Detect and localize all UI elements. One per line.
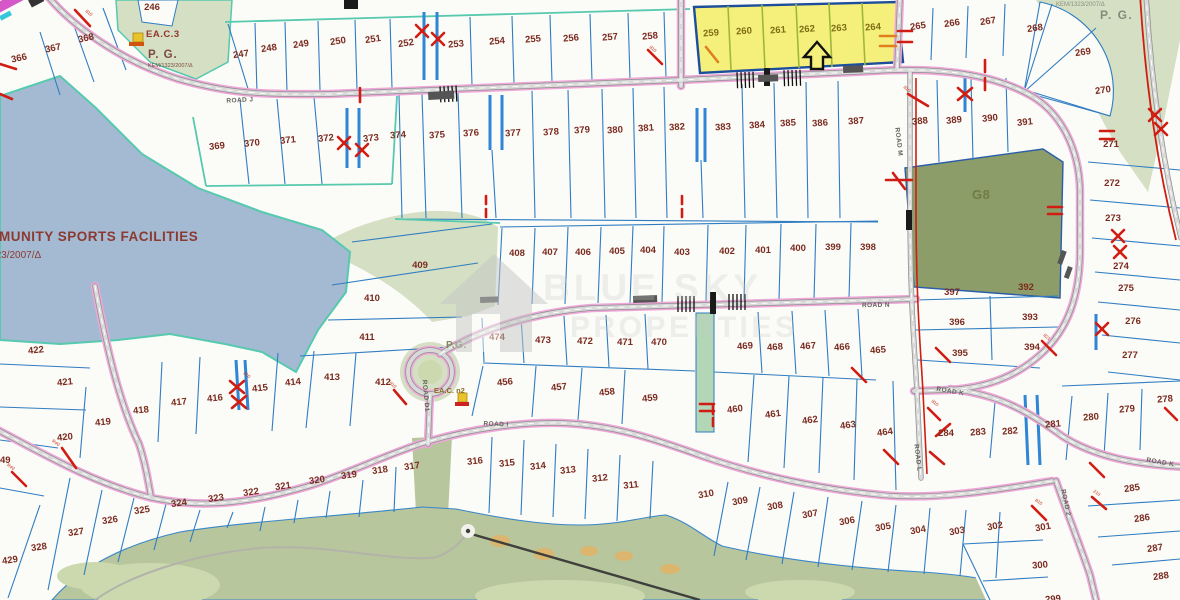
plot-label-387: 387 bbox=[848, 115, 865, 127]
plot-label-422: 422 bbox=[28, 344, 45, 357]
plot-label-326: 326 bbox=[101, 514, 118, 527]
plot-label-318: 318 bbox=[371, 464, 388, 477]
plot-label-462: 462 bbox=[801, 414, 818, 427]
plot-label-252: 252 bbox=[397, 37, 414, 50]
map-canvas: 2462472482492502512522532542552562572582… bbox=[0, 0, 1180, 600]
plot-label-457: 457 bbox=[551, 381, 568, 394]
plot-label-385: 385 bbox=[780, 117, 797, 129]
plot-label-381: 381 bbox=[638, 122, 655, 134]
road-label: ROAD N bbox=[862, 302, 890, 309]
plot-label-388: 388 bbox=[912, 115, 929, 128]
plot-label-394: 394 bbox=[1024, 342, 1041, 353]
plot-label-397: 397 bbox=[944, 287, 960, 298]
plot-label-277: 277 bbox=[1122, 350, 1138, 361]
plot-label-254: 254 bbox=[489, 35, 506, 47]
plot-label-401: 401 bbox=[755, 245, 772, 256]
plot-label-411: 411 bbox=[359, 332, 375, 343]
plot-label-374: 374 bbox=[390, 129, 407, 141]
plot-label-465: 465 bbox=[870, 344, 887, 356]
plot-label-259: 259 bbox=[703, 27, 720, 39]
plot-label-327: 327 bbox=[67, 526, 84, 539]
plot-label-377: 377 bbox=[505, 127, 522, 139]
plot-label-407: 407 bbox=[542, 247, 558, 258]
plot-label-417: 417 bbox=[171, 396, 188, 409]
plot-label-321: 321 bbox=[274, 480, 292, 493]
plot-label-253: 253 bbox=[448, 38, 465, 50]
plot-label-276: 276 bbox=[1125, 316, 1141, 327]
plot-label-311: 311 bbox=[623, 479, 640, 492]
plot-label-390: 390 bbox=[982, 112, 999, 125]
plot-label-313: 313 bbox=[560, 464, 577, 477]
watermark: BLUE SKYPROPERTIES bbox=[440, 254, 798, 352]
plot-label-280: 280 bbox=[1083, 411, 1100, 423]
plot-label-376: 376 bbox=[463, 127, 480, 139]
plot-label-413: 413 bbox=[324, 372, 340, 383]
plot-label-393: 393 bbox=[1022, 312, 1038, 323]
eac3-icon bbox=[133, 33, 143, 42]
watermark-line1: BLUE SKY bbox=[543, 267, 762, 308]
region-label-pg-topleft: P. G. bbox=[148, 49, 178, 61]
plot-label-412: 412 bbox=[375, 377, 391, 388]
plot-label-375: 375 bbox=[429, 129, 446, 141]
plot-label-461: 461 bbox=[764, 408, 782, 421]
plot-label-371: 371 bbox=[280, 134, 298, 147]
plot-label-456: 456 bbox=[497, 376, 514, 389]
watermark-line2: PROPERTIES bbox=[570, 311, 798, 344]
plot-label-267: 267 bbox=[979, 15, 996, 28]
plot-label-270: 270 bbox=[1094, 84, 1111, 97]
plot-label-323: 323 bbox=[207, 492, 224, 505]
plot-label-274: 274 bbox=[1113, 261, 1130, 272]
plot-label-249: 249 bbox=[292, 38, 309, 51]
plot-label-459: 459 bbox=[642, 392, 659, 405]
region-label-community-ref: ΚΕΜ/1323/2007/Δ bbox=[0, 250, 41, 261]
plot-label-266: 266 bbox=[943, 17, 960, 30]
plot-label-247: 247 bbox=[232, 48, 249, 61]
plot-label-406: 406 bbox=[575, 247, 591, 258]
plot-label-373: 373 bbox=[363, 132, 380, 145]
plot-label-416: 416 bbox=[207, 392, 224, 405]
plot-label-325: 325 bbox=[133, 504, 151, 517]
plot-label-257: 257 bbox=[602, 31, 619, 43]
plot-label-396: 396 bbox=[949, 317, 965, 328]
plot-label-258: 258 bbox=[642, 30, 659, 42]
sand-bunker bbox=[580, 546, 598, 556]
plot-label-409: 409 bbox=[412, 260, 428, 271]
plot-label-418: 418 bbox=[133, 404, 150, 417]
plot-label-372: 372 bbox=[318, 132, 335, 145]
plot-label-466: 466 bbox=[834, 341, 851, 353]
plot-label-382: 382 bbox=[669, 121, 686, 133]
plot-label-275: 275 bbox=[1118, 283, 1135, 294]
region-label-community: COMMUNITY SPORTS FACILITIES bbox=[0, 229, 198, 244]
plot-label-279: 279 bbox=[1119, 403, 1136, 415]
plot-label-262: 262 bbox=[799, 23, 816, 35]
plot-label-379: 379 bbox=[574, 124, 591, 136]
plot-label-250: 250 bbox=[329, 35, 346, 48]
plot-label-282: 282 bbox=[1002, 425, 1019, 437]
plot-label-414: 414 bbox=[285, 376, 303, 389]
plot-label-467: 467 bbox=[800, 340, 817, 352]
plot-label-328: 328 bbox=[30, 541, 47, 554]
plot-label-273: 273 bbox=[1105, 213, 1121, 224]
region-label-g8: G8 bbox=[972, 187, 990, 202]
plot-label-380: 380 bbox=[607, 124, 624, 136]
region-label-kem-topright: ΚΕΜ/1323/2007/Δ bbox=[1056, 2, 1105, 8]
plot-label-395: 395 bbox=[952, 348, 969, 359]
plot-label-317: 317 bbox=[403, 460, 420, 473]
plot-label-400: 400 bbox=[790, 243, 806, 254]
region-label-eac3: EA.C.3 bbox=[146, 29, 180, 40]
plot-label-261: 261 bbox=[770, 24, 787, 36]
sand-bunker bbox=[660, 564, 680, 574]
plot-label-316: 316 bbox=[467, 455, 484, 468]
plot-label-281: 281 bbox=[1045, 418, 1062, 430]
road-label: ROAD I bbox=[483, 421, 508, 429]
plot-label-300: 300 bbox=[1032, 559, 1049, 571]
plot-label-312: 312 bbox=[592, 472, 609, 485]
plot-label-278: 278 bbox=[1157, 393, 1174, 405]
plot-label-404: 404 bbox=[640, 245, 657, 256]
plot-label-403: 403 bbox=[674, 247, 690, 258]
plot-label-248: 248 bbox=[260, 42, 277, 55]
region-label-kem-topleft: ΚΕΜ/1323/2007/Δ bbox=[148, 63, 193, 69]
plot-label-460: 460 bbox=[726, 403, 743, 416]
plot-label-286: 286 bbox=[1133, 512, 1150, 525]
plot-label-408: 408 bbox=[509, 248, 525, 259]
plot-label-256: 256 bbox=[563, 32, 580, 44]
plot-label-391: 391 bbox=[1017, 116, 1035, 129]
plot-label-398: 398 bbox=[860, 242, 876, 253]
plot-label-473: 473 bbox=[535, 335, 551, 346]
plot-label-287: 287 bbox=[1146, 542, 1163, 555]
plot-label-314: 314 bbox=[530, 460, 548, 473]
plot-label-389: 389 bbox=[946, 114, 963, 127]
plot-label-384: 384 bbox=[749, 119, 766, 131]
plot-label-464: 464 bbox=[876, 426, 894, 439]
plot-label-392: 392 bbox=[1018, 282, 1034, 293]
plot-label-288: 288 bbox=[1152, 570, 1169, 583]
cadastral-map: 2462472482492502512522532542552562572582… bbox=[0, 0, 1180, 600]
plot-label-269: 269 bbox=[1074, 46, 1091, 59]
plot-label-419: 419 bbox=[95, 416, 112, 429]
plot-label-402: 402 bbox=[719, 246, 735, 257]
plot-label-255: 255 bbox=[525, 33, 542, 45]
plot-label-399: 399 bbox=[825, 242, 841, 253]
plot-label-324: 324 bbox=[170, 497, 188, 510]
plot-label-251: 251 bbox=[364, 33, 382, 46]
plot-label-463: 463 bbox=[839, 419, 856, 432]
plot-label-386: 386 bbox=[812, 117, 829, 129]
plot-label-370: 370 bbox=[244, 137, 261, 150]
plot-label-322: 322 bbox=[242, 486, 259, 499]
sand-bunker bbox=[615, 551, 633, 561]
plot-label-410: 410 bbox=[364, 293, 380, 304]
plot-label-429: 429 bbox=[1, 554, 18, 567]
plot-label-283: 283 bbox=[970, 426, 987, 438]
plot-label-284: 284 bbox=[938, 428, 955, 439]
plot-label-458: 458 bbox=[599, 386, 616, 399]
plot-label-272: 272 bbox=[1104, 178, 1120, 189]
g8-area bbox=[905, 149, 1063, 298]
plot-label-264: 264 bbox=[865, 21, 882, 33]
plot-label-315: 315 bbox=[499, 457, 517, 470]
plot-label-263: 263 bbox=[831, 22, 848, 34]
region-label-eacn2: EA.C. n2 bbox=[434, 386, 465, 395]
plot-label-246: 246 bbox=[144, 2, 160, 13]
plot-label-383: 383 bbox=[715, 121, 732, 133]
plot-label-260: 260 bbox=[736, 25, 753, 37]
plot-label-415: 415 bbox=[252, 382, 270, 395]
region-label-pg-topright: P. G. bbox=[1100, 8, 1133, 22]
plot-label-369: 369 bbox=[209, 140, 226, 153]
plot-label-271: 271 bbox=[1103, 139, 1120, 150]
road-label: ROAD J bbox=[226, 96, 253, 104]
plot-label-319: 319 bbox=[340, 469, 357, 482]
plot-label-320: 320 bbox=[308, 474, 325, 487]
plot-label-265: 265 bbox=[909, 20, 927, 33]
plot-label-268: 268 bbox=[1026, 22, 1043, 35]
highlight-block bbox=[694, 2, 903, 73]
plot-label-299: 299 bbox=[1045, 593, 1062, 600]
plot-label-405: 405 bbox=[609, 246, 626, 257]
plot-label-378: 378 bbox=[543, 126, 560, 138]
plot-label-285: 285 bbox=[1123, 482, 1141, 495]
plot-label-421: 421 bbox=[57, 376, 75, 389]
